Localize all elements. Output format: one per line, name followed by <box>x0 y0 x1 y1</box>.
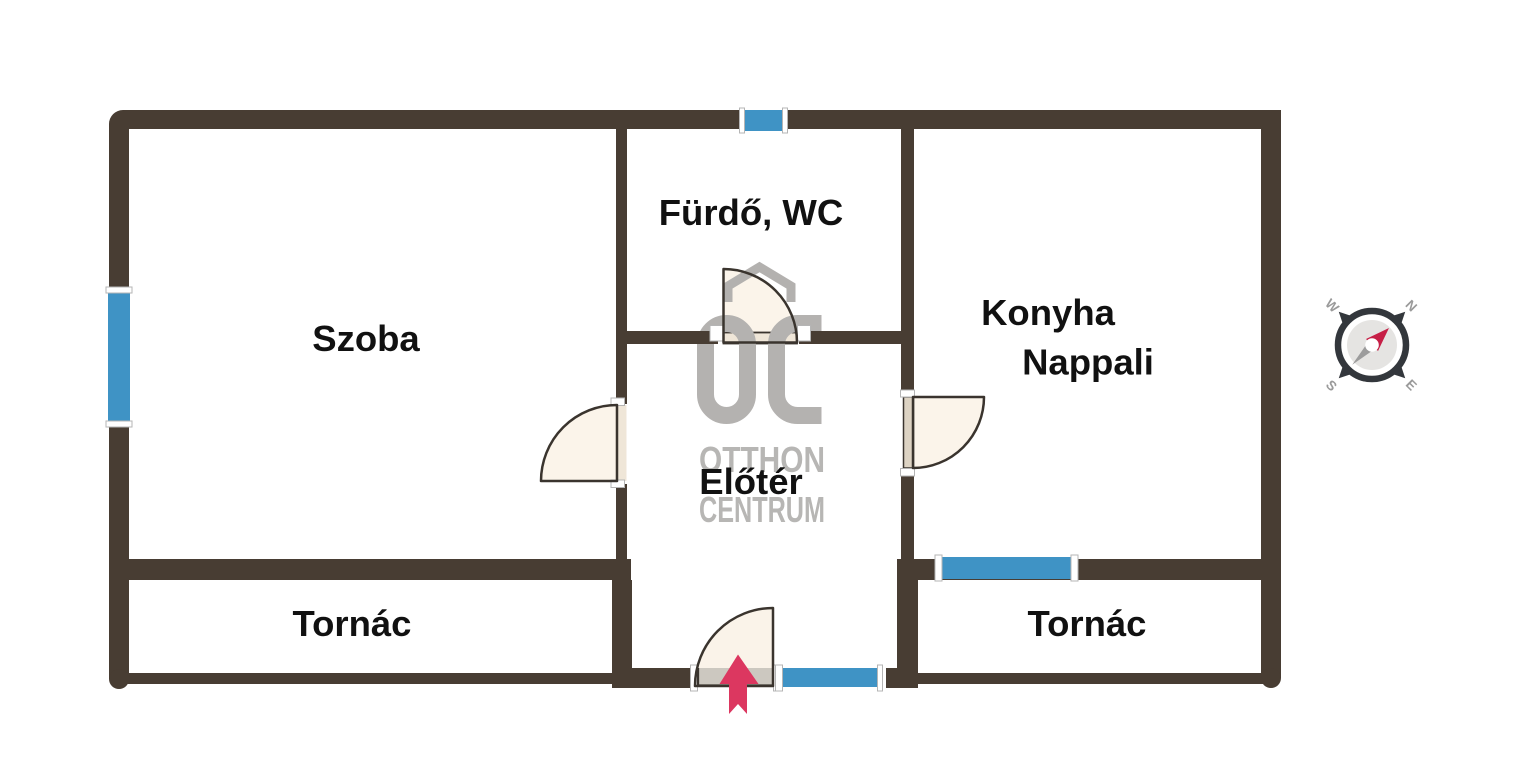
svg-text:Fürdő, WC: Fürdő, WC <box>659 192 843 233</box>
svg-text:Tornác: Tornác <box>1028 603 1147 644</box>
svg-text:Konyha: Konyha <box>981 292 1116 333</box>
svg-text:Nappali: Nappali <box>1022 342 1154 383</box>
svg-text:Tornác: Tornác <box>293 603 412 644</box>
svg-text:Szoba: Szoba <box>312 318 420 359</box>
svg-text:Előtér: Előtér <box>699 461 802 502</box>
